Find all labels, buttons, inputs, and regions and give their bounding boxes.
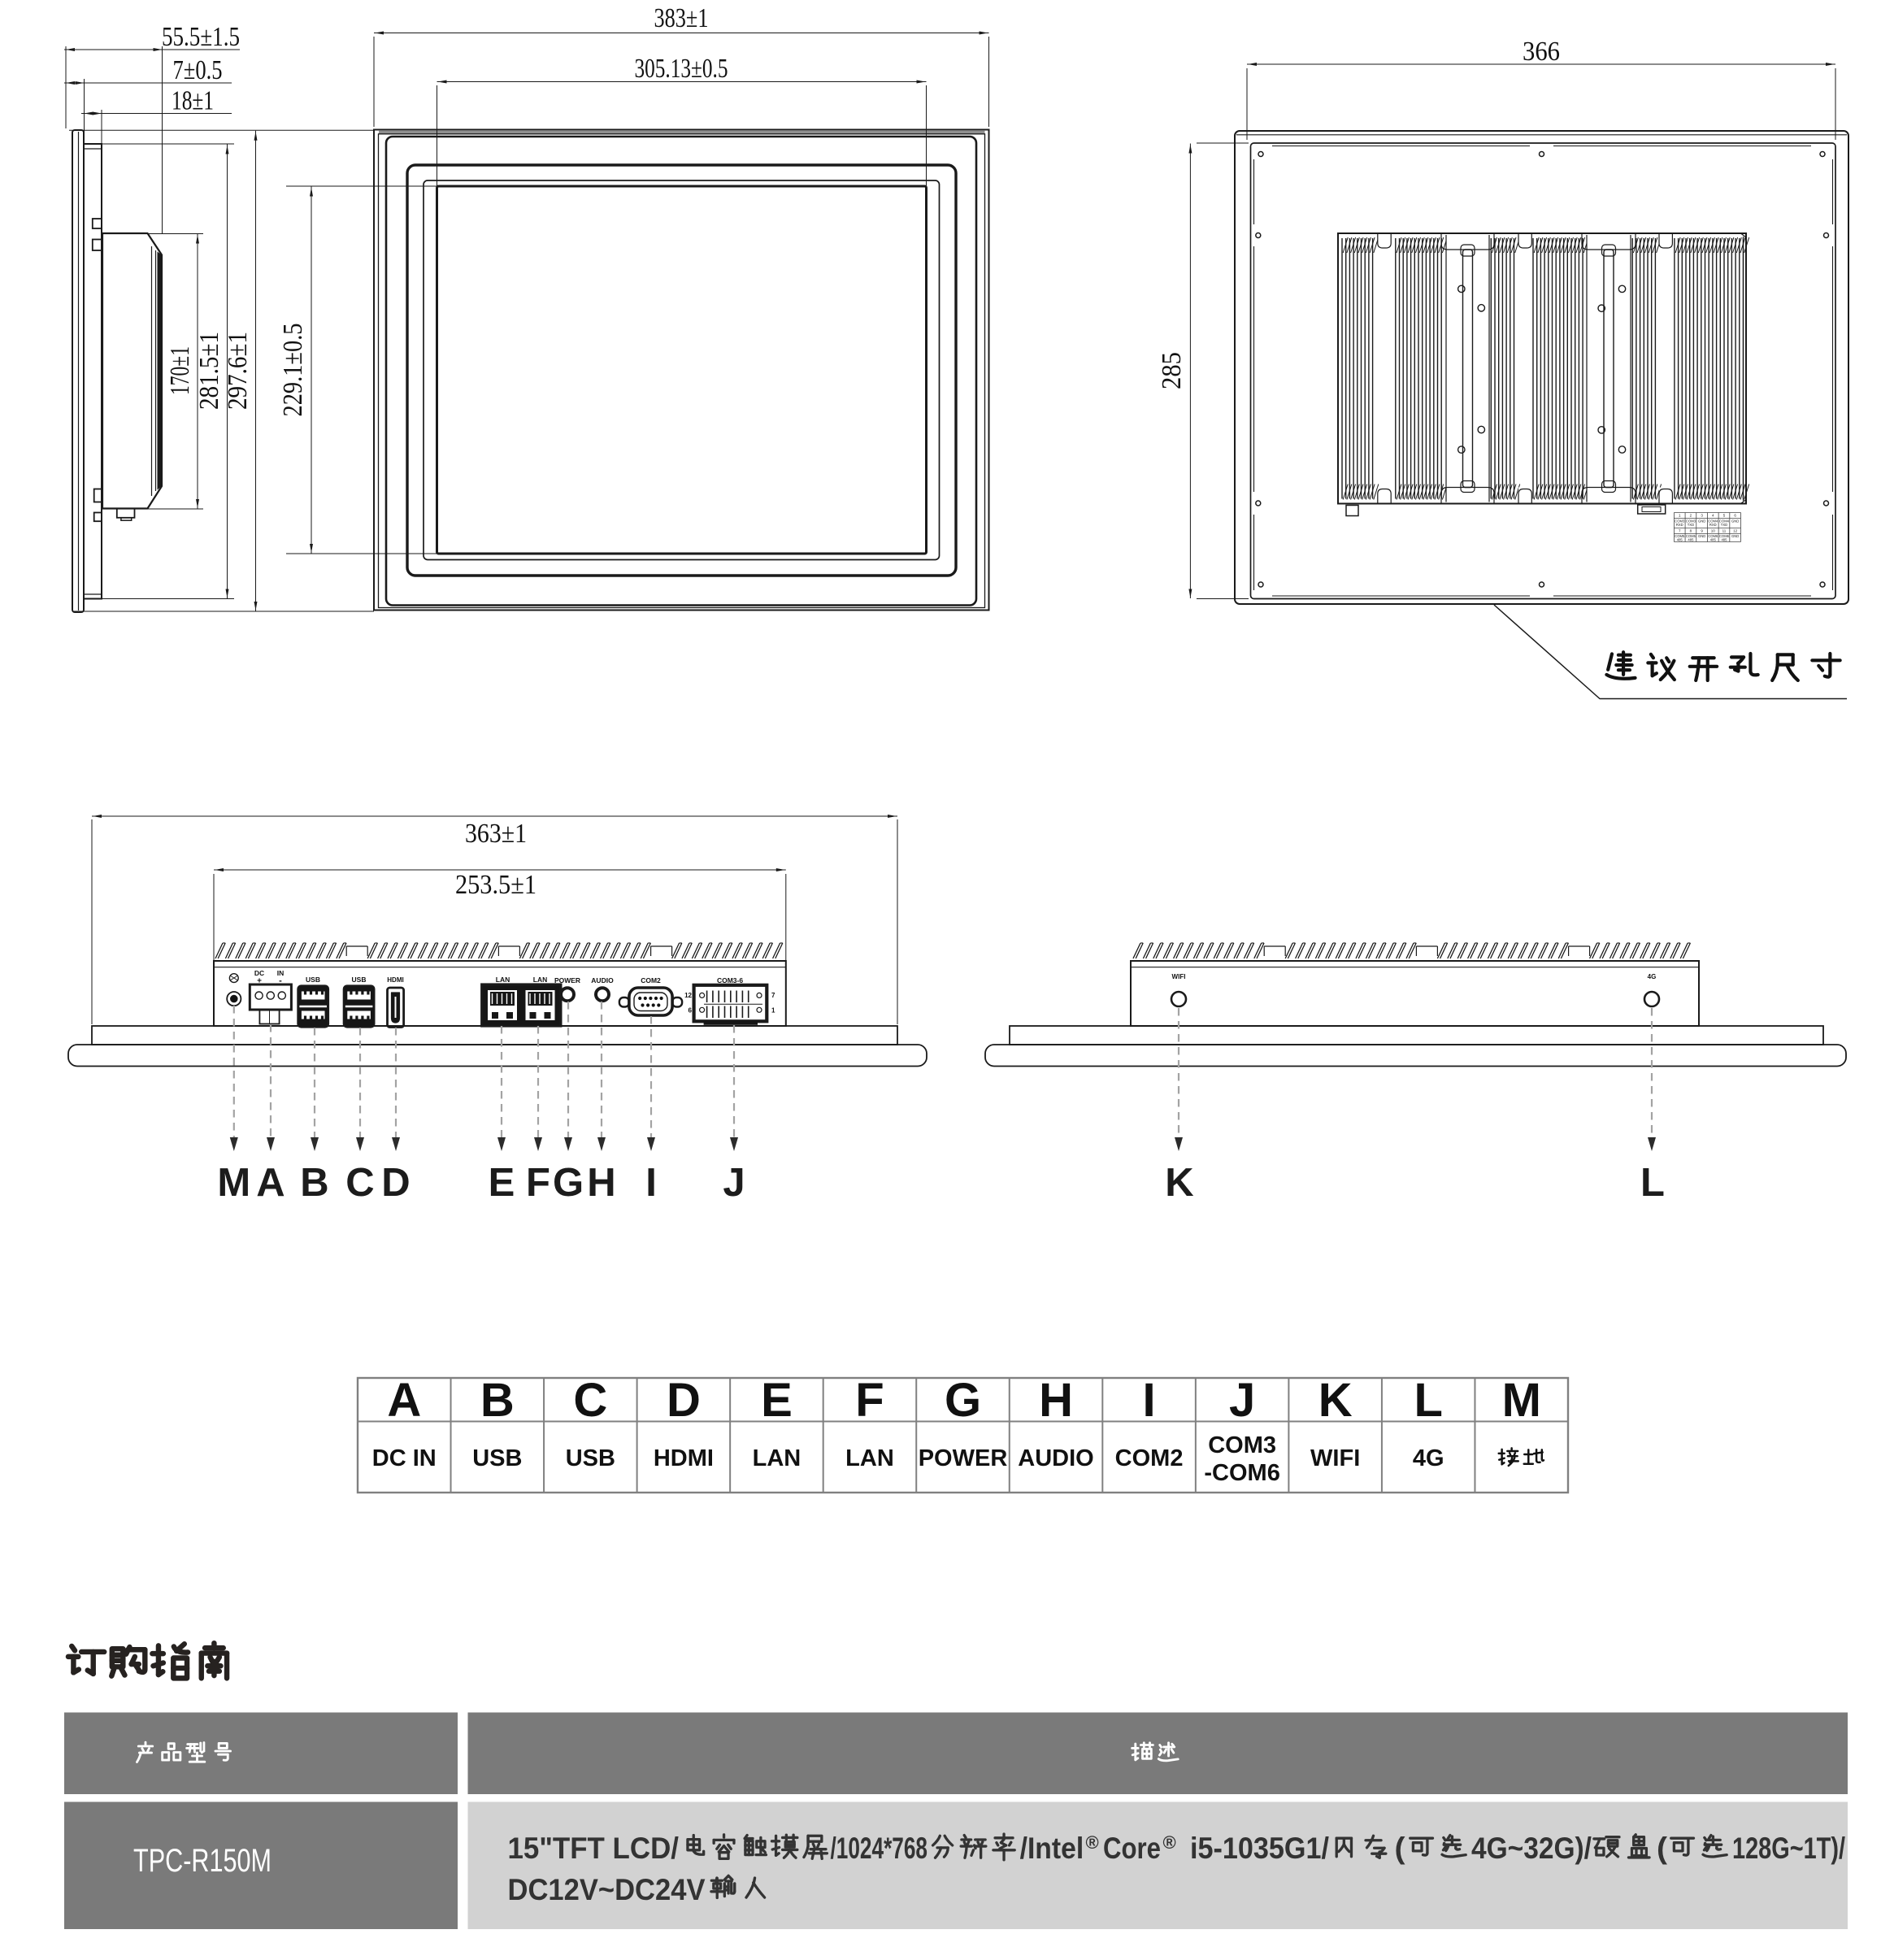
svg-text:®: ® [1163, 1832, 1176, 1853]
svg-text:8: 8 [1690, 529, 1692, 533]
svg-text:/1024*768: /1024*768 [831, 1832, 928, 1865]
svg-text:4G: 4G [1413, 1445, 1444, 1471]
svg-text:USB: USB [306, 976, 320, 984]
svg-text:POWER: POWER [554, 976, 580, 984]
svg-text:L: L [1414, 1374, 1442, 1427]
svg-text:C: C [345, 1161, 374, 1205]
svg-text:AUDIO: AUDIO [591, 976, 614, 984]
svg-text:E: E [489, 1161, 515, 1205]
svg-text:HDMI: HDMI [654, 1445, 714, 1471]
svg-text:229.1±0.5: 229.1±0.5 [278, 324, 308, 417]
svg-text:TPC-R150M: TPC-R150M [133, 1843, 272, 1879]
svg-text:G: G [553, 1161, 584, 1205]
svg-text:485: 485 [1710, 538, 1717, 542]
svg-text:(: ( [1657, 1832, 1668, 1865]
svg-text:G: G [945, 1374, 981, 1427]
svg-text:WIFI: WIFI [1310, 1445, 1360, 1471]
svg-text:H: H [1039, 1374, 1073, 1427]
svg-text:USB: USB [352, 976, 367, 984]
svg-text:285: 285 [1157, 352, 1187, 389]
svg-text:POWER: POWER [919, 1445, 1008, 1471]
svg-text:GND: GND [1731, 534, 1739, 538]
svg-text:366: 366 [1523, 37, 1560, 67]
svg-text:305.13±0.5: 305.13±0.5 [635, 54, 728, 84]
svg-text:7±0.5: 7±0.5 [173, 55, 223, 85]
svg-text:12: 12 [1733, 529, 1738, 533]
svg-text:E: E [761, 1374, 793, 1427]
svg-text:281.5±1: 281.5±1 [194, 332, 224, 410]
svg-text:GND: GND [1698, 519, 1705, 524]
svg-text:7: 7 [771, 992, 775, 999]
svg-text:DC: DC [254, 969, 264, 977]
svg-text:LAN: LAN [753, 1445, 801, 1471]
svg-text:M: M [217, 1161, 250, 1205]
svg-text:i5-1035G1/: i5-1035G1/ [1190, 1832, 1329, 1865]
svg-text:GND: GND [1698, 534, 1705, 538]
svg-text:/Intel: /Intel [1020, 1832, 1084, 1865]
svg-text:RXD: RXD [1709, 523, 1717, 527]
svg-text:D: D [381, 1161, 410, 1205]
svg-text:COM2: COM2 [1115, 1445, 1184, 1471]
svg-text:10: 10 [1711, 529, 1716, 533]
svg-text:AUDIO: AUDIO [1018, 1445, 1093, 1471]
svg-text:A: A [256, 1161, 285, 1205]
svg-text:WIFI: WIFI [1172, 973, 1186, 980]
svg-text:F: F [526, 1161, 550, 1205]
svg-text:B: B [300, 1161, 328, 1205]
svg-text:LAN: LAN [845, 1445, 894, 1471]
svg-text:18±1: 18±1 [172, 86, 214, 116]
svg-text:4G: 4G [1648, 973, 1657, 980]
svg-text:-COM6: -COM6 [1204, 1460, 1279, 1486]
svg-text:L: L [1640, 1161, 1665, 1205]
svg-text:D: D [667, 1374, 701, 1427]
svg-text:15"TFT LCD/: 15"TFT LCD/ [508, 1832, 680, 1865]
svg-text:4G~32G)/: 4G~32G)/ [1471, 1832, 1592, 1865]
svg-text:55.5±1.5: 55.5±1.5 [162, 22, 240, 52]
svg-text:C: C [573, 1374, 607, 1427]
svg-text:®: ® [1086, 1832, 1099, 1853]
svg-text:7: 7 [1679, 529, 1681, 533]
svg-text:COM3-6: COM3-6 [717, 976, 743, 984]
svg-text:3: 3 [1701, 514, 1703, 518]
svg-text:COM2: COM2 [641, 976, 661, 984]
svg-text:A: A [387, 1374, 421, 1427]
svg-text:12: 12 [684, 992, 692, 999]
svg-text:363±1: 363±1 [465, 819, 527, 849]
svg-text:B: B [480, 1374, 515, 1427]
svg-text:K: K [1165, 1161, 1193, 1205]
svg-text:1: 1 [1679, 514, 1681, 518]
svg-text:170±1: 170±1 [165, 346, 195, 395]
svg-text:297.6±1: 297.6±1 [223, 332, 253, 410]
svg-text:I: I [645, 1161, 657, 1205]
svg-text:F: F [855, 1374, 884, 1427]
svg-text:DC12V~DC24V: DC12V~DC24V [508, 1873, 706, 1906]
svg-text:H: H [587, 1161, 615, 1205]
svg-text:485: 485 [1721, 538, 1727, 542]
svg-text:LAN: LAN [496, 976, 510, 984]
svg-text:I: I [1143, 1374, 1156, 1427]
svg-text:485: 485 [1677, 538, 1683, 542]
svg-text:2: 2 [1690, 514, 1692, 518]
svg-text:HDMI: HDMI [387, 976, 403, 984]
svg-text:COM3: COM3 [1208, 1432, 1276, 1458]
svg-text:128G~1T)/: 128G~1T)/ [1732, 1832, 1845, 1865]
svg-text:6: 6 [1734, 514, 1736, 518]
svg-text:4: 4 [1712, 514, 1714, 518]
svg-text:383±1: 383±1 [654, 3, 709, 33]
svg-text:USB: USB [566, 1445, 615, 1471]
svg-text:11: 11 [1722, 529, 1727, 533]
svg-text:485: 485 [1688, 538, 1694, 542]
svg-text:LAN: LAN [533, 976, 547, 984]
svg-text:TXD: TXD [1688, 523, 1694, 527]
svg-text:9: 9 [1701, 529, 1703, 533]
svg-text:RXD: RXD [1676, 523, 1683, 527]
svg-text:5: 5 [1723, 514, 1726, 518]
svg-text:1: 1 [771, 1007, 775, 1015]
svg-text:6: 6 [689, 1007, 693, 1015]
svg-text:(: ( [1395, 1832, 1406, 1865]
svg-text:J: J [723, 1161, 745, 1205]
svg-text:253.5±1: 253.5±1 [455, 870, 536, 900]
svg-text:GND: GND [1731, 519, 1739, 524]
svg-text:DC IN: DC IN [372, 1445, 437, 1471]
svg-text:K: K [1318, 1374, 1353, 1427]
svg-text:TXD: TXD [1721, 523, 1727, 527]
svg-text:J: J [1229, 1374, 1255, 1427]
svg-text:USB: USB [472, 1445, 522, 1471]
svg-text:Core: Core [1103, 1832, 1161, 1865]
svg-text:M: M [1502, 1374, 1541, 1427]
